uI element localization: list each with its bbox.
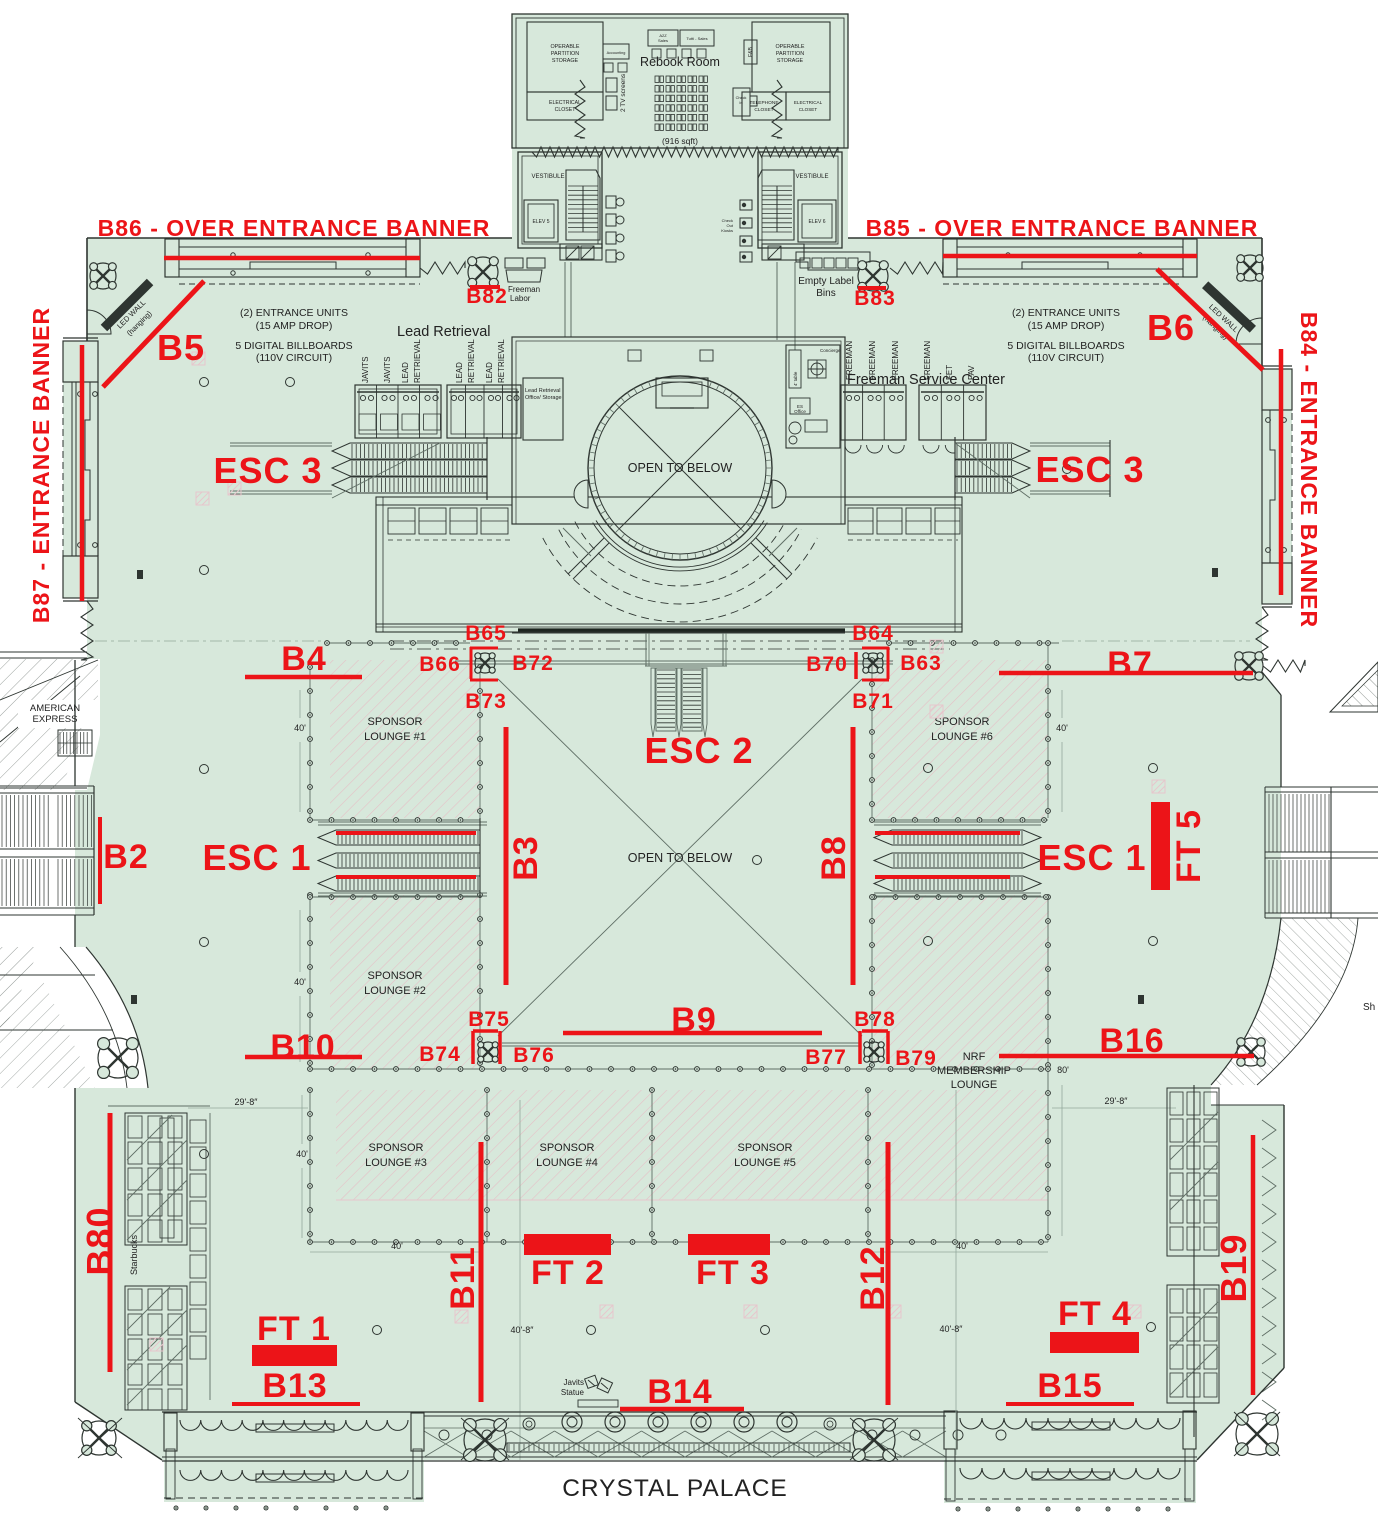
svg-text:ELECTRICAL: ELECTRICAL bbox=[549, 100, 581, 106]
svg-text:40': 40' bbox=[391, 1241, 403, 1251]
svg-text:(15 AMP DROP): (15 AMP DROP) bbox=[1028, 320, 1105, 332]
svg-text:LOUNGE #1: LOUNGE #1 bbox=[364, 731, 426, 743]
svg-text:Empty Label: Empty Label bbox=[798, 276, 854, 287]
svg-text:B65: B65 bbox=[465, 622, 507, 645]
svg-text:FT 1: FT 1 bbox=[257, 1310, 331, 1348]
svg-text:LOUNGE #4: LOUNGE #4 bbox=[536, 1157, 598, 1169]
svg-text:B12: B12 bbox=[854, 1245, 892, 1310]
svg-text:B85 - OVER ENTRANCE BANNER: B85 - OVER ENTRANCE BANNER bbox=[866, 215, 1259, 241]
svg-text:B75: B75 bbox=[468, 1008, 510, 1031]
svg-text:2 TV screens: 2 TV screens bbox=[620, 73, 627, 112]
svg-text:LEAD: LEAD bbox=[455, 362, 464, 383]
svg-text:40': 40' bbox=[294, 723, 306, 733]
svg-text:40'-8″: 40'-8″ bbox=[940, 1324, 964, 1334]
svg-text:Javits: Javits bbox=[564, 1378, 584, 1387]
svg-text:Lead Retrieval: Lead Retrieval bbox=[397, 324, 491, 340]
svg-text:B6: B6 bbox=[1147, 307, 1195, 348]
svg-text:80': 80' bbox=[1057, 1065, 1069, 1075]
svg-text:B77: B77 bbox=[805, 1046, 847, 1069]
svg-text:F&B: F&B bbox=[748, 46, 754, 56]
svg-text:B70: B70 bbox=[806, 653, 848, 676]
svg-text:LEAD: LEAD bbox=[401, 362, 410, 383]
svg-text:(2) ENTRANCE UNITS: (2) ENTRANCE UNITS bbox=[1012, 307, 1120, 319]
svg-text:40': 40' bbox=[1056, 723, 1068, 733]
svg-text:CLOSET: CLOSET bbox=[799, 107, 818, 112]
svg-text:MEMBERSHIP: MEMBERSHIP bbox=[937, 1065, 1011, 1077]
svg-text:B8: B8 bbox=[815, 835, 853, 880]
svg-text:40': 40' bbox=[296, 1149, 308, 1159]
svg-text:(916 sqft): (916 sqft) bbox=[662, 136, 698, 146]
svg-text:SPONSOR: SPONSOR bbox=[367, 716, 422, 728]
svg-text:ESC 1: ESC 1 bbox=[202, 837, 311, 878]
svg-text:Starbucks: Starbucks bbox=[129, 1234, 139, 1275]
svg-text:Check: Check bbox=[736, 96, 747, 100]
svg-text:B78: B78 bbox=[854, 1008, 896, 1031]
svg-text:CLOSET: CLOSET bbox=[754, 107, 773, 113]
svg-text:B15: B15 bbox=[1037, 1367, 1102, 1405]
svg-text:B63: B63 bbox=[900, 652, 942, 675]
svg-text:ESC 1: ESC 1 bbox=[1037, 837, 1146, 878]
svg-text:RETRIEVAL: RETRIEVAL bbox=[497, 339, 506, 383]
svg-text:B71: B71 bbox=[852, 690, 894, 713]
svg-text:B80: B80 bbox=[79, 1206, 120, 1275]
svg-text:FT 3: FT 3 bbox=[696, 1254, 770, 1292]
svg-text:Lead Retrieval: Lead Retrieval bbox=[525, 388, 560, 394]
svg-text:B79: B79 bbox=[895, 1047, 937, 1070]
svg-text:B2: B2 bbox=[103, 838, 148, 876]
svg-text:B66: B66 bbox=[419, 653, 461, 676]
svg-text:SPONSOR: SPONSOR bbox=[737, 1142, 792, 1154]
svg-text:29'-8″: 29'-8″ bbox=[235, 1097, 259, 1107]
svg-text:B76: B76 bbox=[513, 1044, 555, 1067]
svg-text:STORAGE: STORAGE bbox=[777, 58, 804, 64]
svg-text:JAVITS: JAVITS bbox=[361, 356, 370, 383]
svg-text:Office: Office bbox=[794, 409, 806, 414]
svg-text:40': 40' bbox=[294, 977, 306, 987]
svg-text:(15 AMP DROP): (15 AMP DROP) bbox=[256, 320, 333, 332]
svg-text:Sh: Sh bbox=[1363, 1002, 1375, 1013]
svg-text:Concierge: Concierge bbox=[820, 348, 841, 353]
svg-text:B4: B4 bbox=[281, 640, 326, 678]
svg-text:TELEPHONE: TELEPHONE bbox=[749, 100, 778, 106]
svg-text:B3: B3 bbox=[507, 835, 545, 880]
svg-text:Office/ Storage: Office/ Storage bbox=[525, 395, 562, 401]
svg-text:ESC 2: ESC 2 bbox=[644, 730, 753, 771]
svg-text:B73: B73 bbox=[465, 690, 507, 713]
svg-text:B13: B13 bbox=[262, 1367, 327, 1405]
svg-text:PARTITION: PARTITION bbox=[776, 51, 804, 57]
svg-text:PARTITION: PARTITION bbox=[551, 51, 579, 57]
svg-text:LOUNGE #3: LOUNGE #3 bbox=[365, 1157, 427, 1169]
svg-text:LOUNGE: LOUNGE bbox=[951, 1079, 997, 1091]
svg-text:29'-8″: 29'-8″ bbox=[1105, 1096, 1129, 1106]
svg-text:Tutti - Sales: Tutti - Sales bbox=[686, 36, 707, 41]
svg-text:JAVITS: JAVITS bbox=[383, 356, 392, 383]
svg-text:NRF: NRF bbox=[963, 1051, 986, 1063]
svg-text:40'-8″: 40'-8″ bbox=[511, 1325, 535, 1335]
svg-text:FT 4: FT 4 bbox=[1058, 1295, 1132, 1333]
svg-text:4' table: 4' table bbox=[793, 371, 798, 386]
svg-text:AMERICAN: AMERICAN bbox=[30, 703, 80, 714]
svg-text:In: In bbox=[739, 101, 742, 105]
svg-text:B72: B72 bbox=[512, 652, 554, 675]
svg-text:B11: B11 bbox=[444, 1246, 482, 1310]
svg-text:Freeman Service Center: Freeman Service Center bbox=[847, 372, 1005, 388]
svg-text:ESC 3: ESC 3 bbox=[213, 450, 322, 491]
svg-text:OPERABLE: OPERABLE bbox=[550, 44, 579, 50]
svg-text:SPONSOR: SPONSOR bbox=[539, 1142, 594, 1154]
svg-text:(2) ENTRANCE UNITS: (2) ENTRANCE UNITS bbox=[240, 307, 348, 319]
svg-text:VESTIBULE: VESTIBULE bbox=[795, 174, 828, 180]
svg-text:LOUNGE #2: LOUNGE #2 bbox=[364, 985, 426, 997]
svg-text:FT 2: FT 2 bbox=[531, 1254, 605, 1292]
svg-text:B84 - ENTRANCE BANNER: B84 - ENTRANCE BANNER bbox=[1296, 312, 1322, 628]
svg-text:5 DIGITAL BILLBOARDS: 5 DIGITAL BILLBOARDS bbox=[1007, 340, 1124, 352]
svg-text:B19: B19 bbox=[1213, 1233, 1254, 1302]
svg-text:B86 - OVER ENTRANCE BANNER: B86 - OVER ENTRANCE BANNER bbox=[98, 215, 491, 241]
svg-text:Accounting: Accounting bbox=[607, 51, 626, 55]
svg-text:B5: B5 bbox=[157, 327, 205, 368]
svg-text:Statue: Statue bbox=[561, 1388, 585, 1397]
svg-text:CLOSET: CLOSET bbox=[555, 107, 577, 113]
svg-text:ELEV 5: ELEV 5 bbox=[533, 219, 550, 225]
svg-text:SPONSOR: SPONSOR bbox=[367, 970, 422, 982]
svg-text:LEAD: LEAD bbox=[485, 362, 494, 383]
svg-text:RETRIEVAL: RETRIEVAL bbox=[467, 339, 476, 383]
svg-text:B14: B14 bbox=[647, 1373, 712, 1411]
svg-text:VESTIBULE: VESTIBULE bbox=[531, 174, 564, 180]
svg-text:B74: B74 bbox=[419, 1043, 461, 1066]
svg-text:ESC 3: ESC 3 bbox=[1035, 449, 1144, 490]
svg-text:Bins: Bins bbox=[816, 288, 835, 299]
svg-text:OPEN TO BELOW: OPEN TO BELOW bbox=[628, 461, 733, 475]
svg-text:B87 - ENTRANCE BANNER: B87 - ENTRANCE BANNER bbox=[28, 307, 54, 623]
svg-text:ELEV 6: ELEV 6 bbox=[809, 219, 826, 225]
svg-text:LOUNGE #6: LOUNGE #6 bbox=[931, 731, 993, 743]
svg-text:RETRIEVAL: RETRIEVAL bbox=[413, 339, 422, 383]
svg-text:OPEN TO BELOW: OPEN TO BELOW bbox=[628, 851, 733, 865]
svg-text:Freeman: Freeman bbox=[508, 285, 540, 294]
svg-text:EXPRESS: EXPRESS bbox=[33, 714, 78, 725]
svg-text:Sales: Sales bbox=[658, 38, 668, 43]
svg-text:Labor: Labor bbox=[510, 294, 531, 303]
svg-text:B64: B64 bbox=[852, 622, 894, 645]
svg-text:B83: B83 bbox=[854, 287, 896, 310]
svg-text:CRYSTAL PALACE: CRYSTAL PALACE bbox=[562, 1475, 788, 1502]
svg-text:B7: B7 bbox=[1107, 645, 1152, 683]
svg-text:STORAGE: STORAGE bbox=[552, 58, 579, 64]
svg-text:(110V CIRCUIT): (110V CIRCUIT) bbox=[256, 352, 332, 364]
svg-text:ELECTRICAL: ELECTRICAL bbox=[794, 100, 823, 105]
svg-text:B10: B10 bbox=[270, 1028, 335, 1066]
svg-text:5 DIGITAL BILLBOARDS: 5 DIGITAL BILLBOARDS bbox=[235, 340, 352, 352]
svg-text:40': 40' bbox=[956, 1241, 968, 1251]
svg-text:OPERABLE: OPERABLE bbox=[775, 44, 804, 50]
svg-text:LOUNGE #5: LOUNGE #5 bbox=[734, 1157, 796, 1169]
svg-text:(110V CIRCUIT): (110V CIRCUIT) bbox=[1028, 352, 1104, 364]
svg-text:SPONSOR: SPONSOR bbox=[368, 1142, 423, 1154]
svg-text:Rebook Room: Rebook Room bbox=[640, 55, 720, 69]
svg-text:Kiosks: Kiosks bbox=[721, 228, 733, 233]
svg-text:FT 5: FT 5 bbox=[1170, 809, 1208, 883]
